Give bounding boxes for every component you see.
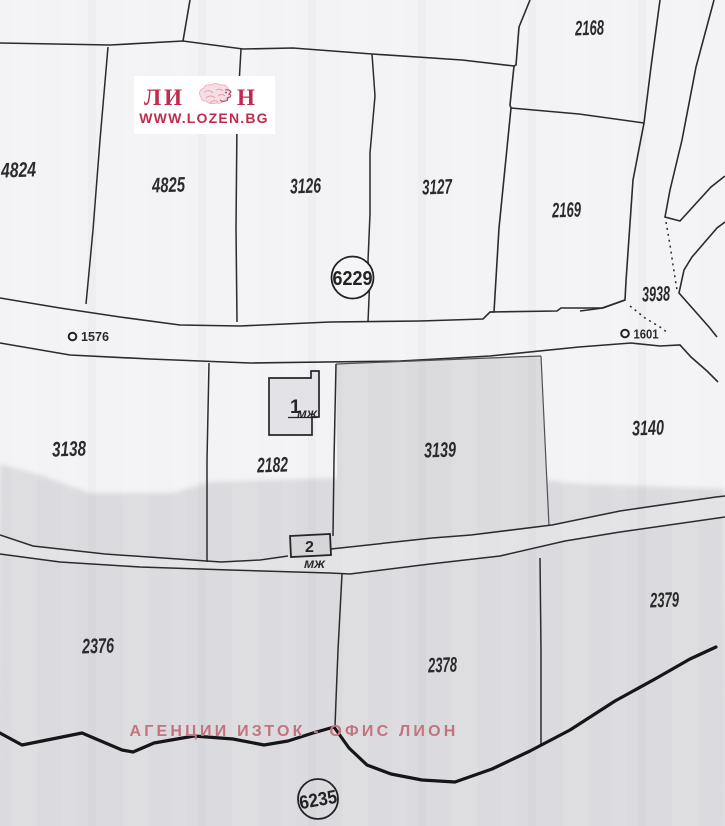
svg-text:3138: 3138: [52, 437, 87, 461]
svg-text:2168: 2168: [574, 17, 605, 41]
svg-text:ЛИ: ЛИ: [144, 85, 185, 110]
svg-text:2376: 2376: [81, 634, 115, 658]
svg-text:3139: 3139: [424, 438, 457, 462]
svg-text:1576: 1576: [81, 329, 109, 344]
svg-text:1601: 1601: [634, 327, 659, 342]
svg-text:2169: 2169: [551, 198, 582, 222]
svg-text:6229: 6229: [333, 268, 373, 290]
svg-text:WWW.LOZEN.BG: WWW.LOZEN.BG: [139, 110, 269, 126]
svg-text:3126: 3126: [290, 174, 322, 198]
svg-text:3938: 3938: [642, 283, 671, 307]
svg-text:Н: Н: [237, 85, 255, 110]
svg-text:3127: 3127: [422, 175, 454, 199]
svg-text:2182: 2182: [256, 453, 289, 477]
svg-text:2: 2: [305, 539, 314, 556]
svg-text:АГЕНЦИИ ИЗТОК - ОФИС ЛИОН: АГЕНЦИИ ИЗТОК - ОФИС ЛИОН: [129, 723, 458, 740]
svg-text:3140: 3140: [632, 416, 665, 440]
svg-text:2379: 2379: [649, 588, 680, 612]
svg-text:4825: 4825: [151, 173, 186, 197]
svg-text:МЖ: МЖ: [297, 409, 318, 421]
svg-text:4824: 4824: [0, 158, 37, 182]
svg-text:2378: 2378: [427, 654, 458, 678]
svg-text:МЖ: МЖ: [304, 559, 326, 571]
